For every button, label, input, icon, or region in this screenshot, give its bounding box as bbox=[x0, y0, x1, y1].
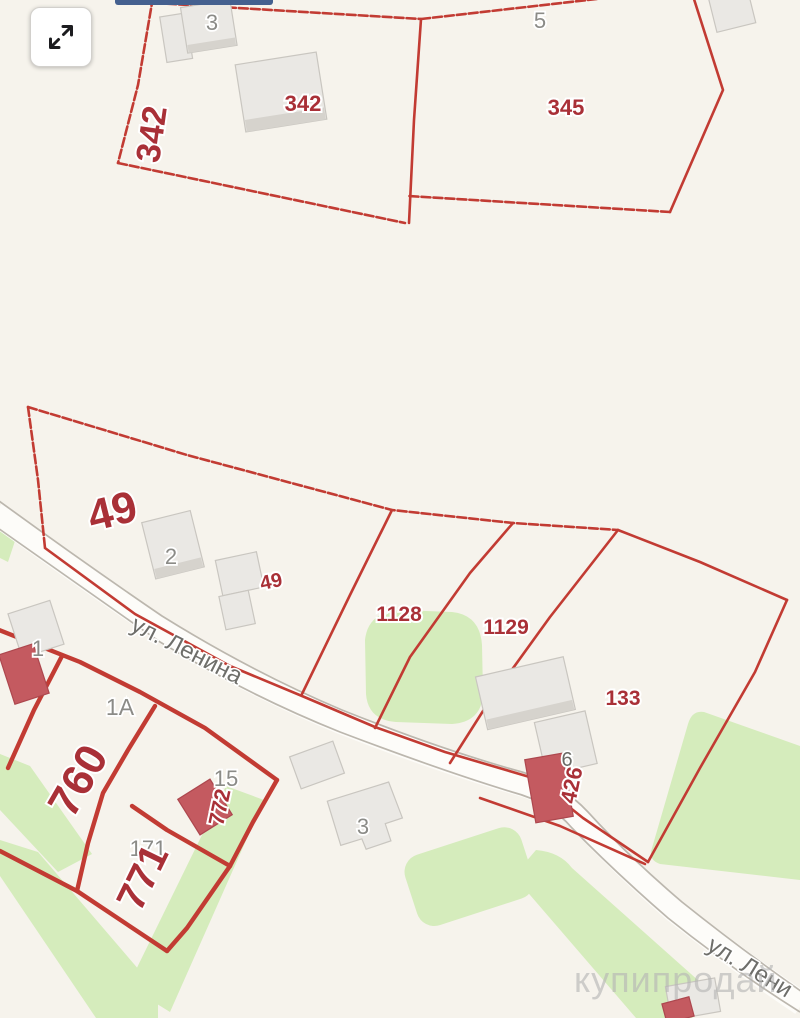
parcel-345-top-boundary bbox=[421, 0, 623, 19]
parcel-label-1129: 1129 bbox=[483, 616, 529, 639]
building-top-right bbox=[709, 0, 756, 32]
expand-button[interactable] bbox=[30, 7, 92, 67]
green-blob-1128 bbox=[365, 610, 483, 724]
cadastral-map[interactable]: 342 342 345 5 3 49 2 49 1128 1129 133 1 … bbox=[0, 0, 800, 1018]
green-band-bottom-center bbox=[400, 823, 539, 931]
building-label-3-top: 3 bbox=[206, 10, 218, 35]
building-3-top bbox=[159, 0, 238, 62]
building-label-1: 1 bbox=[32, 636, 44, 661]
building-label-15: 15 bbox=[214, 766, 238, 791]
building-label-5: 5 bbox=[534, 8, 546, 33]
top-blue-bar bbox=[115, 0, 273, 5]
parcel-label-771: 771 bbox=[108, 838, 177, 917]
watermark: купипродай bbox=[574, 959, 778, 1000]
parcel-label-345: 345 bbox=[548, 95, 585, 120]
parcel-label-49-small: 49 bbox=[258, 569, 284, 595]
building-label-3-mid: 3 bbox=[357, 814, 369, 839]
building-small-road bbox=[290, 741, 345, 789]
building-label-2: 2 bbox=[165, 544, 177, 569]
parcel-label-1128: 1128 bbox=[376, 603, 422, 626]
parcel-label-1A: 1A bbox=[106, 694, 135, 720]
green-area-right bbox=[651, 712, 800, 880]
parcel-label-49-big: 49 bbox=[83, 482, 142, 541]
parcel-342-bottom-boundary bbox=[118, 163, 405, 223]
parcel-133-top-boundary bbox=[618, 530, 787, 600]
parcel-345-right-boundary bbox=[670, 0, 723, 212]
parcel-label-342: 342 bbox=[285, 91, 322, 116]
parcel-342-345-divider bbox=[409, 19, 421, 223]
parcel-label-342-rotated: 342 bbox=[129, 103, 175, 164]
map-viewport: 342 342 345 5 3 49 2 49 1128 1129 133 1 … bbox=[0, 0, 800, 1018]
parcel-345-bottom-boundary bbox=[408, 196, 670, 212]
parcel-label-133: 133 bbox=[605, 687, 640, 710]
expand-arrows-icon bbox=[43, 19, 79, 55]
